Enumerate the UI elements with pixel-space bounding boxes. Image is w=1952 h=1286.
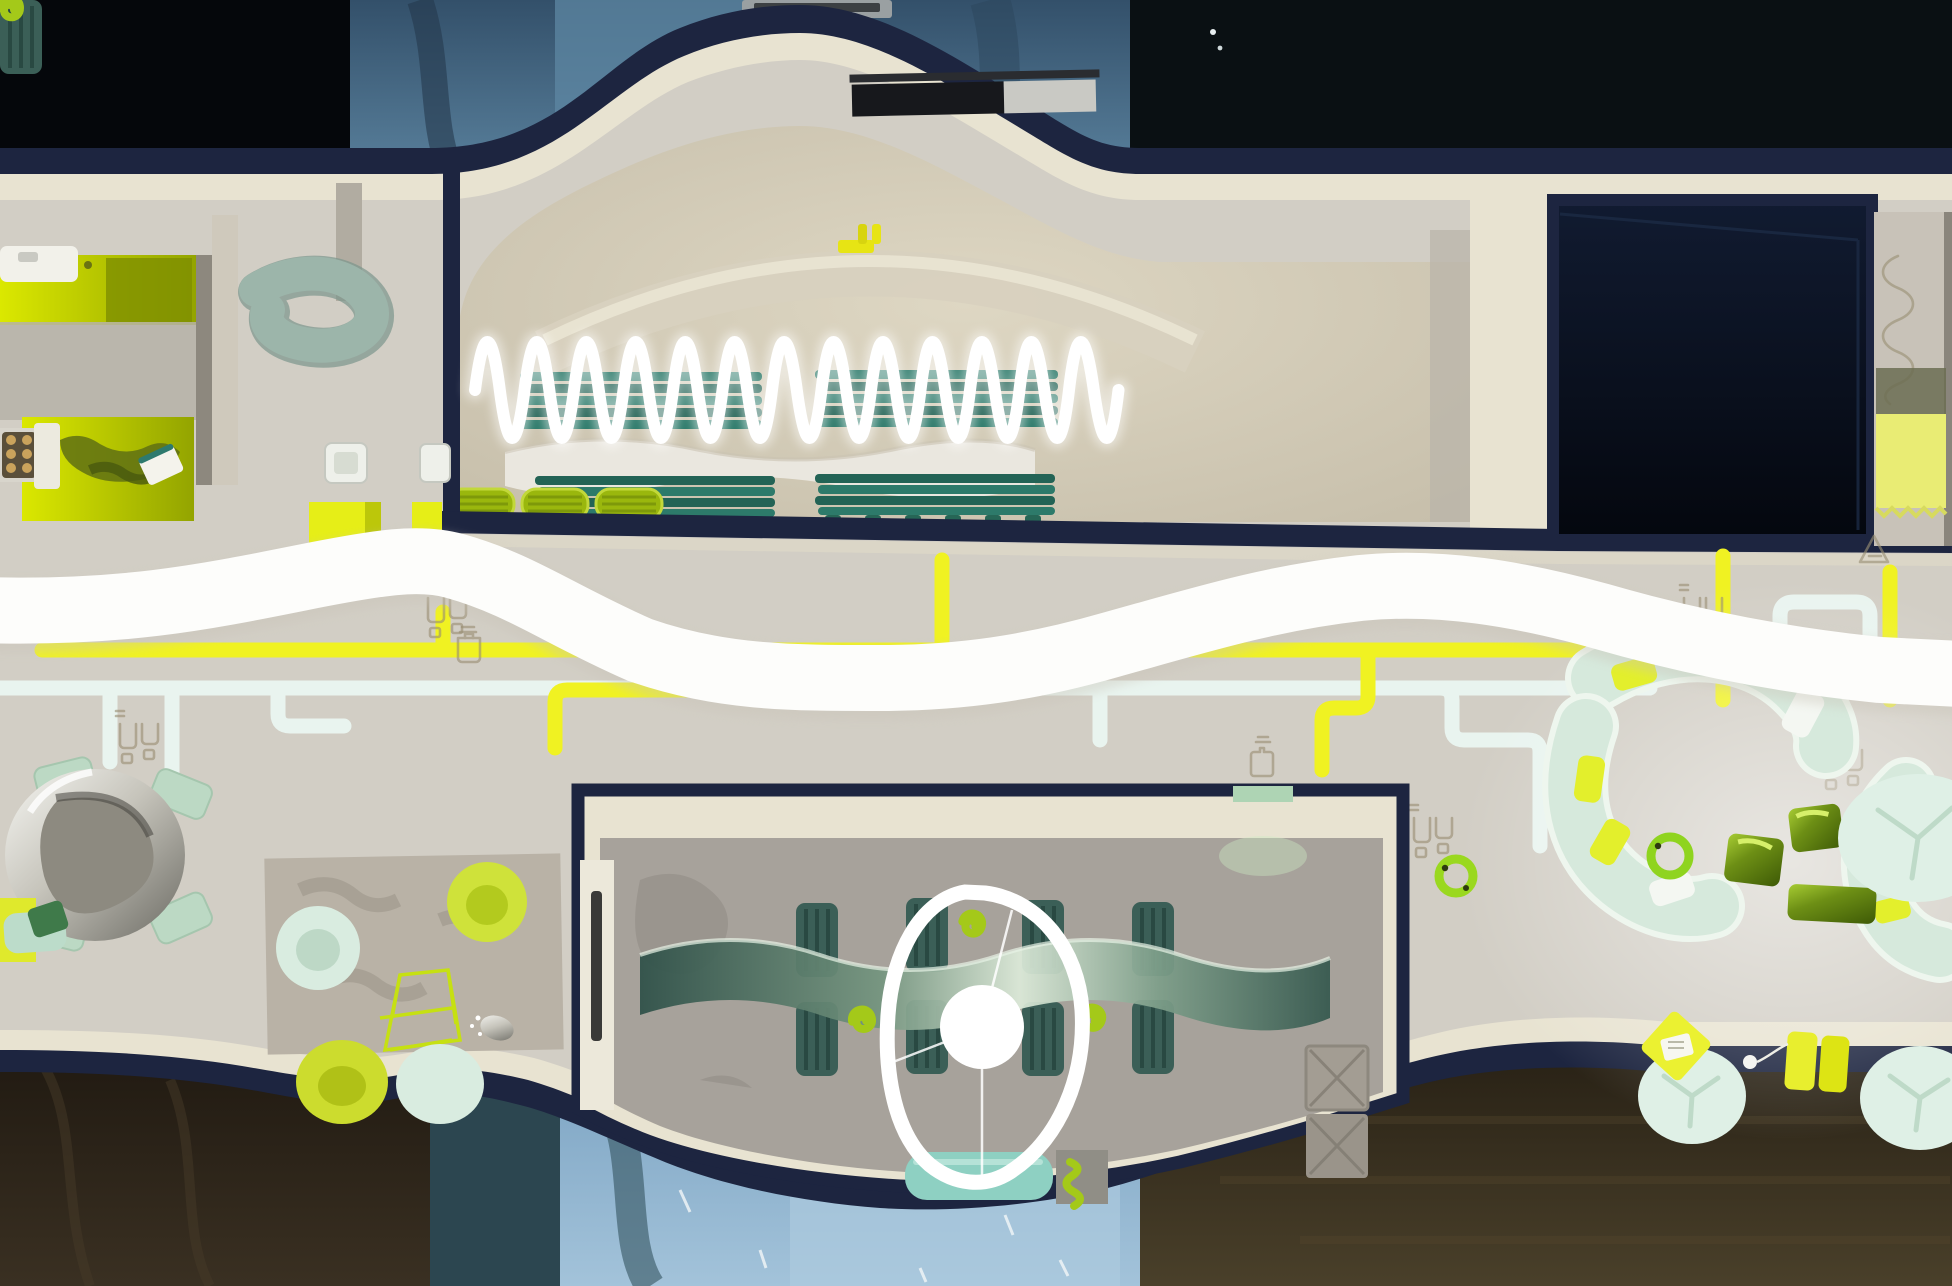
sine-wave-annotation: [475, 342, 1119, 438]
partition-wall-light: [212, 215, 238, 485]
door-slot: [591, 891, 602, 1041]
scene: WC: [0, 0, 1952, 1286]
chartreuse-pouf: [296, 1040, 388, 1124]
stage-screen: [852, 81, 1005, 116]
lectern-leg: [872, 224, 881, 244]
stage-panel-silver: [1004, 79, 1097, 113]
reception-floor-olive: [106, 258, 192, 322]
speck: [1210, 29, 1216, 35]
white-table-glass: [334, 452, 358, 474]
squiggle: [960, 911, 984, 935]
stage: [849, 69, 1100, 116]
white-table: [420, 444, 450, 482]
cafe-cabinet: [34, 423, 60, 489]
yellow-pouf: [1784, 1031, 1818, 1091]
cafe-corner: [0, 417, 194, 521]
hall-left-wall: [443, 152, 460, 544]
utility-dark-mat: [1876, 368, 1946, 414]
floorplan-rendering: WC: [0, 0, 1952, 1286]
partition-wall: [196, 255, 212, 485]
hall-right-wall: [1470, 200, 1554, 548]
speck: [1218, 46, 1223, 51]
yellow-pouf: [1818, 1035, 1850, 1093]
reception-desk: [0, 246, 78, 282]
concrete-zone: [0, 322, 196, 420]
green-glow: [1219, 836, 1307, 876]
utility-room: [1874, 212, 1952, 546]
mint-pouf: [396, 1044, 484, 1124]
desk-item: [18, 252, 38, 262]
lectern-leg: [858, 224, 867, 244]
mint-donut-pouf: [276, 906, 360, 990]
dark-room: [1553, 200, 1872, 540]
dark-room-interior: [1553, 200, 1872, 540]
bench: [1022, 1002, 1064, 1076]
utility-yellow-mat: [1876, 414, 1946, 508]
squiggle: [850, 1008, 873, 1031]
floor-dot: [84, 261, 92, 269]
lime-donut-pouf: [447, 862, 527, 942]
lamp-bulb: [940, 985, 1024, 1069]
floor-shadow-strip: [1430, 230, 1472, 522]
lectern-desk: [838, 240, 874, 253]
white-ball: [1743, 1055, 1757, 1069]
wall-planter: [1233, 786, 1293, 802]
cliff-top-left: [0, 0, 360, 170]
